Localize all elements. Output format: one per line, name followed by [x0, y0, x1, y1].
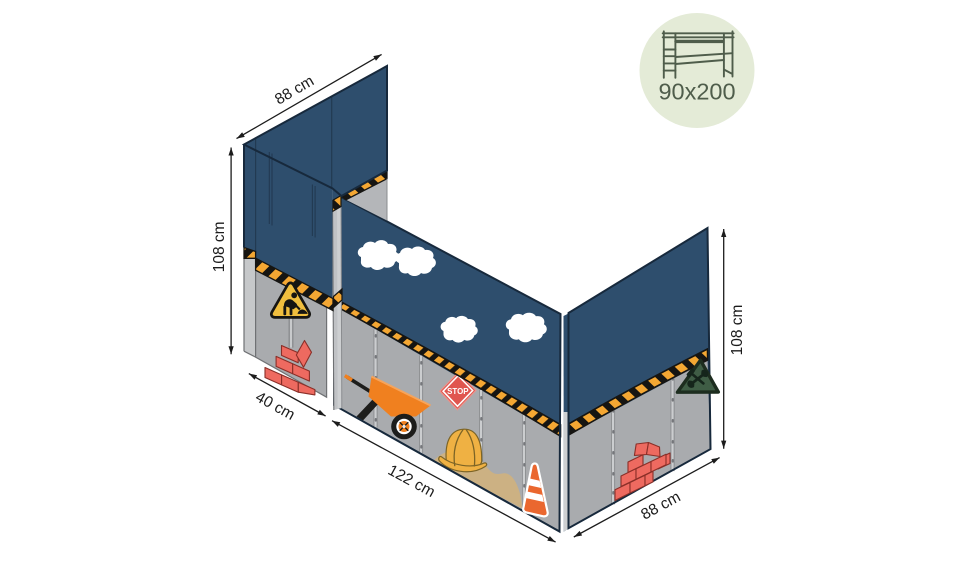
svg-text:STOP: STOP	[447, 387, 468, 396]
svg-text:88 cm: 88 cm	[272, 72, 317, 108]
svg-text:108 cm: 108 cm	[211, 221, 228, 272]
svg-text:122 cm: 122 cm	[385, 462, 438, 501]
svg-text:108 cm: 108 cm	[729, 305, 746, 356]
svg-text:90x200: 90x200	[658, 79, 735, 105]
svg-text:40 cm: 40 cm	[252, 389, 297, 424]
svg-text:88 cm: 88 cm	[638, 488, 683, 523]
